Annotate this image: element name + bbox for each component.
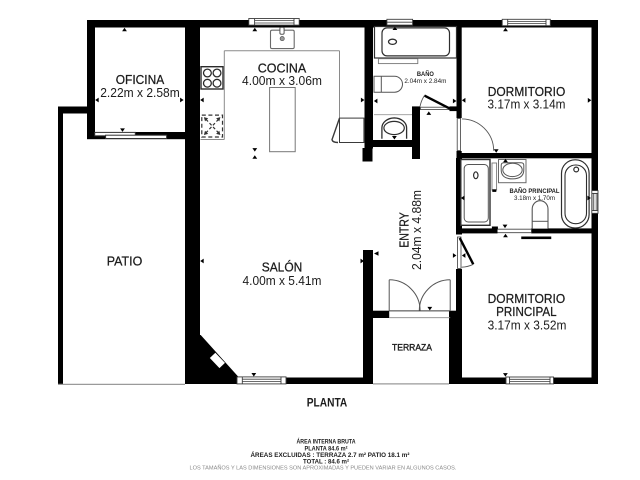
svg-text:2.22m x 2.58m: 2.22m x 2.58m bbox=[100, 86, 180, 100]
svg-text:LOS TAMAÑOS Y LAS DIMENSIONES: LOS TAMAÑOS Y LAS DIMENSIONES SON APROXI… bbox=[190, 464, 457, 471]
svg-text:3.18m x 1.70m: 3.18m x 1.70m bbox=[514, 195, 555, 202]
svg-text:2.04m x 2.84m: 2.04m x 2.84m bbox=[404, 78, 446, 85]
svg-text:PLANTA: PLANTA bbox=[307, 398, 348, 410]
svg-text:2.04m x 4.88m: 2.04m x 4.88m bbox=[410, 190, 424, 270]
svg-text:PRINCIPAL: PRINCIPAL bbox=[496, 304, 557, 319]
svg-text:ÁREAS EXCLUIDAS : TERRAZA 2.7: ÁREAS EXCLUIDAS : TERRAZA 2.7 m² PATIO 1… bbox=[251, 452, 410, 459]
svg-text:TERRAZA: TERRAZA bbox=[392, 342, 432, 352]
svg-text:BAÑO: BAÑO bbox=[417, 69, 434, 78]
svg-text:3.17m x 3.52m: 3.17m x 3.52m bbox=[488, 318, 567, 332]
svg-text:ÁREA INTERNA BRUTA: ÁREA INTERNA BRUTA bbox=[297, 439, 357, 446]
svg-text:PATIO: PATIO bbox=[107, 254, 143, 269]
svg-text:3.17m x 3.14m: 3.17m x 3.14m bbox=[488, 98, 566, 112]
svg-text:PLANTA 84.6 m²: PLANTA 84.6 m² bbox=[305, 445, 348, 452]
svg-text:4.00m x 5.41m: 4.00m x 5.41m bbox=[243, 274, 322, 288]
svg-text:SALÓN: SALÓN bbox=[262, 260, 303, 275]
svg-text:4.00m x 3.06m: 4.00m x 3.06m bbox=[242, 74, 322, 88]
svg-text:OFICINA: OFICINA bbox=[116, 72, 165, 87]
svg-text:BAÑO PRINCIPAL: BAÑO PRINCIPAL bbox=[510, 186, 560, 195]
